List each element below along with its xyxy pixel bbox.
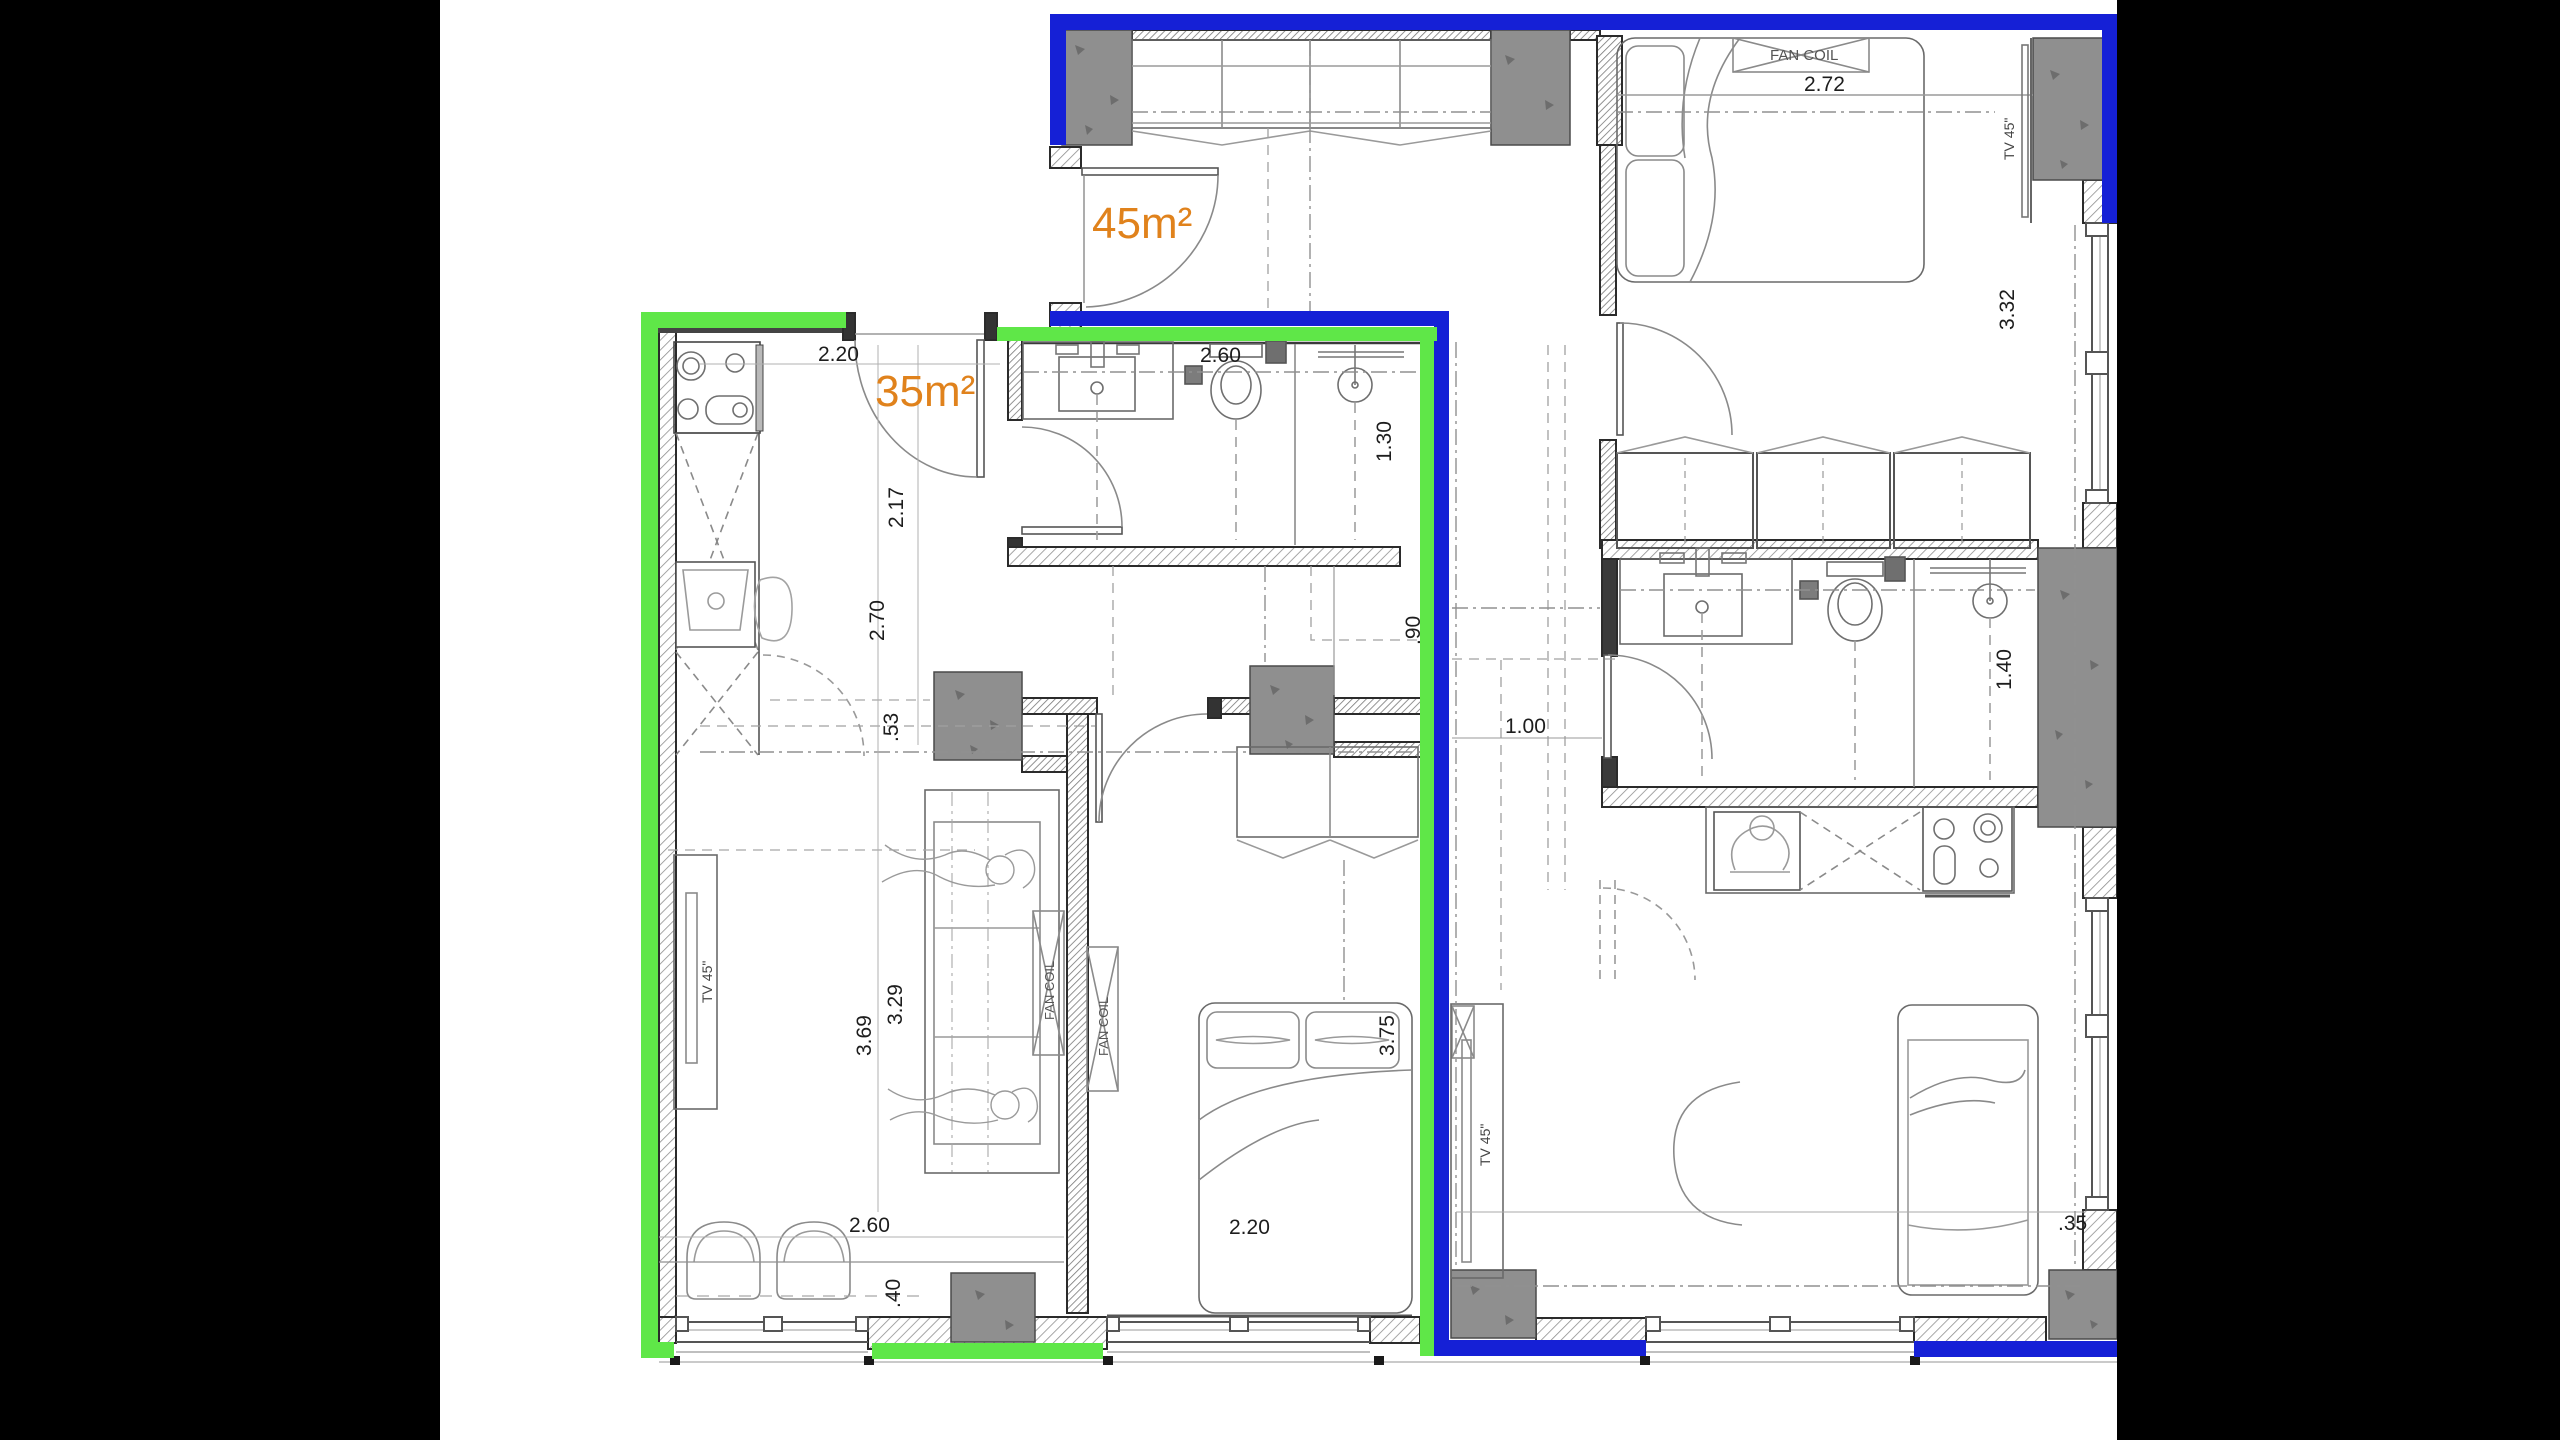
svg-text:45m²: 45m² [1092, 199, 1192, 248]
svg-text:.40: .40 [882, 1279, 905, 1308]
svg-text:FAN COIL: FAN COIL [1096, 997, 1111, 1056]
svg-text:.35: .35 [2058, 1212, 2087, 1235]
svg-text:1.30: 1.30 [1373, 421, 1396, 462]
svg-text:FAN COIL: FAN COIL [1770, 47, 1838, 64]
svg-text:2.20: 2.20 [818, 343, 859, 366]
svg-text:2.17: 2.17 [885, 487, 908, 528]
svg-text:3.69: 3.69 [853, 1015, 876, 1056]
svg-text:.53: .53 [880, 713, 903, 742]
svg-text:1.00: 1.00 [1505, 715, 1546, 738]
svg-text:2.60: 2.60 [849, 1214, 890, 1237]
svg-text:2.70: 2.70 [866, 600, 889, 641]
svg-text:1.40: 1.40 [1993, 649, 2016, 690]
svg-text:35m²: 35m² [875, 367, 975, 416]
svg-text:2.60: 2.60 [1200, 344, 1241, 367]
svg-text:FAN COIL: FAN COIL [1042, 961, 1057, 1020]
svg-text:TV 45": TV 45" [2001, 118, 2017, 160]
svg-text:2.72: 2.72 [1804, 73, 1845, 96]
svg-text:3.75: 3.75 [1376, 1015, 1399, 1056]
svg-text:TV 45": TV 45" [699, 961, 715, 1003]
svg-text:2.20: 2.20 [1229, 1216, 1270, 1239]
svg-text:3.29: 3.29 [884, 984, 907, 1025]
svg-text:3.32: 3.32 [1996, 289, 2019, 330]
svg-text:TV 45": TV 45" [1477, 1124, 1493, 1166]
